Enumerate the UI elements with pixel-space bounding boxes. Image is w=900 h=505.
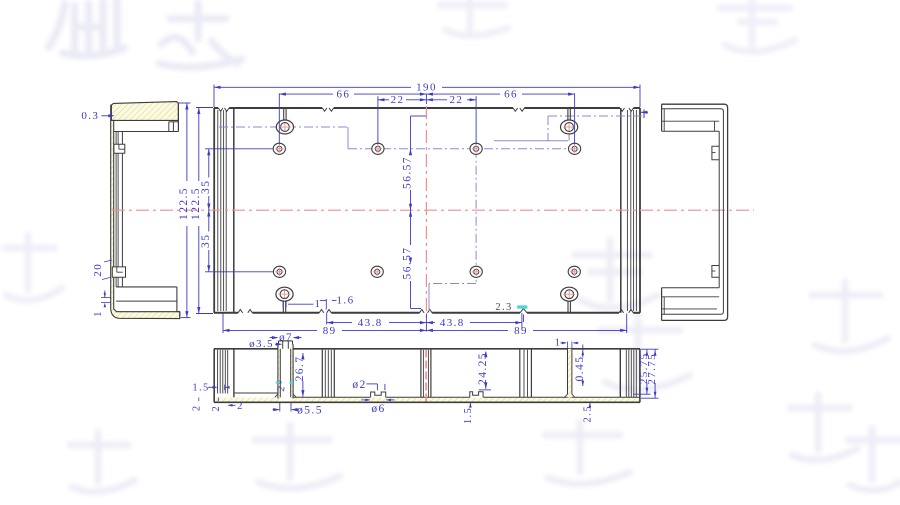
svg-text:0.3: 0.3 — [81, 110, 99, 122]
svg-text:22: 22 — [391, 94, 405, 106]
svg-text:ø6: ø6 — [371, 403, 385, 415]
svg-text:2: 2 — [237, 401, 244, 412]
svg-text:0.45: 0.45 — [574, 356, 586, 382]
svg-text:24.25: 24.25 — [477, 352, 489, 385]
svg-text:1: 1 — [555, 338, 562, 349]
svg-text:2: 2 — [191, 404, 202, 411]
svg-text:1: 1 — [93, 310, 104, 317]
svg-text:89: 89 — [514, 325, 528, 337]
svg-text:66: 66 — [504, 88, 518, 100]
svg-text:190: 190 — [416, 82, 437, 94]
svg-text:20: 20 — [92, 263, 104, 277]
svg-text:26.7: 26.7 — [294, 356, 306, 382]
svg-text:22: 22 — [449, 94, 463, 106]
svg-text:56.57: 56.57 — [402, 247, 414, 280]
svg-text:2°: 2° — [276, 378, 289, 392]
svg-text:2.3: 2.3 — [495, 302, 512, 313]
svg-text:89: 89 — [323, 325, 337, 337]
svg-text:1.5: 1.5 — [192, 382, 209, 393]
svg-text:ø7: ø7 — [279, 331, 293, 343]
svg-text:56.57: 56.57 — [402, 156, 414, 189]
svg-text:1.5: 1.5 — [463, 407, 474, 424]
svg-text:66: 66 — [336, 88, 350, 100]
svg-text:2: 2 — [211, 405, 222, 412]
svg-text:27.75: 27.75 — [646, 353, 658, 385]
svg-text:2.5: 2.5 — [582, 405, 593, 422]
svg-text:1.6: 1.6 — [337, 294, 355, 306]
svg-text:ø5.5: ø5.5 — [297, 405, 323, 417]
svg-text:35: 35 — [200, 234, 212, 248]
svg-text:35: 35 — [200, 180, 212, 194]
svg-text:ø3.5: ø3.5 — [249, 338, 274, 350]
svg-text:122.5: 122.5 — [178, 187, 190, 220]
svg-text:ø2: ø2 — [352, 379, 366, 391]
svg-text:43.8: 43.8 — [440, 317, 465, 329]
svg-text:43.8: 43.8 — [358, 317, 383, 329]
